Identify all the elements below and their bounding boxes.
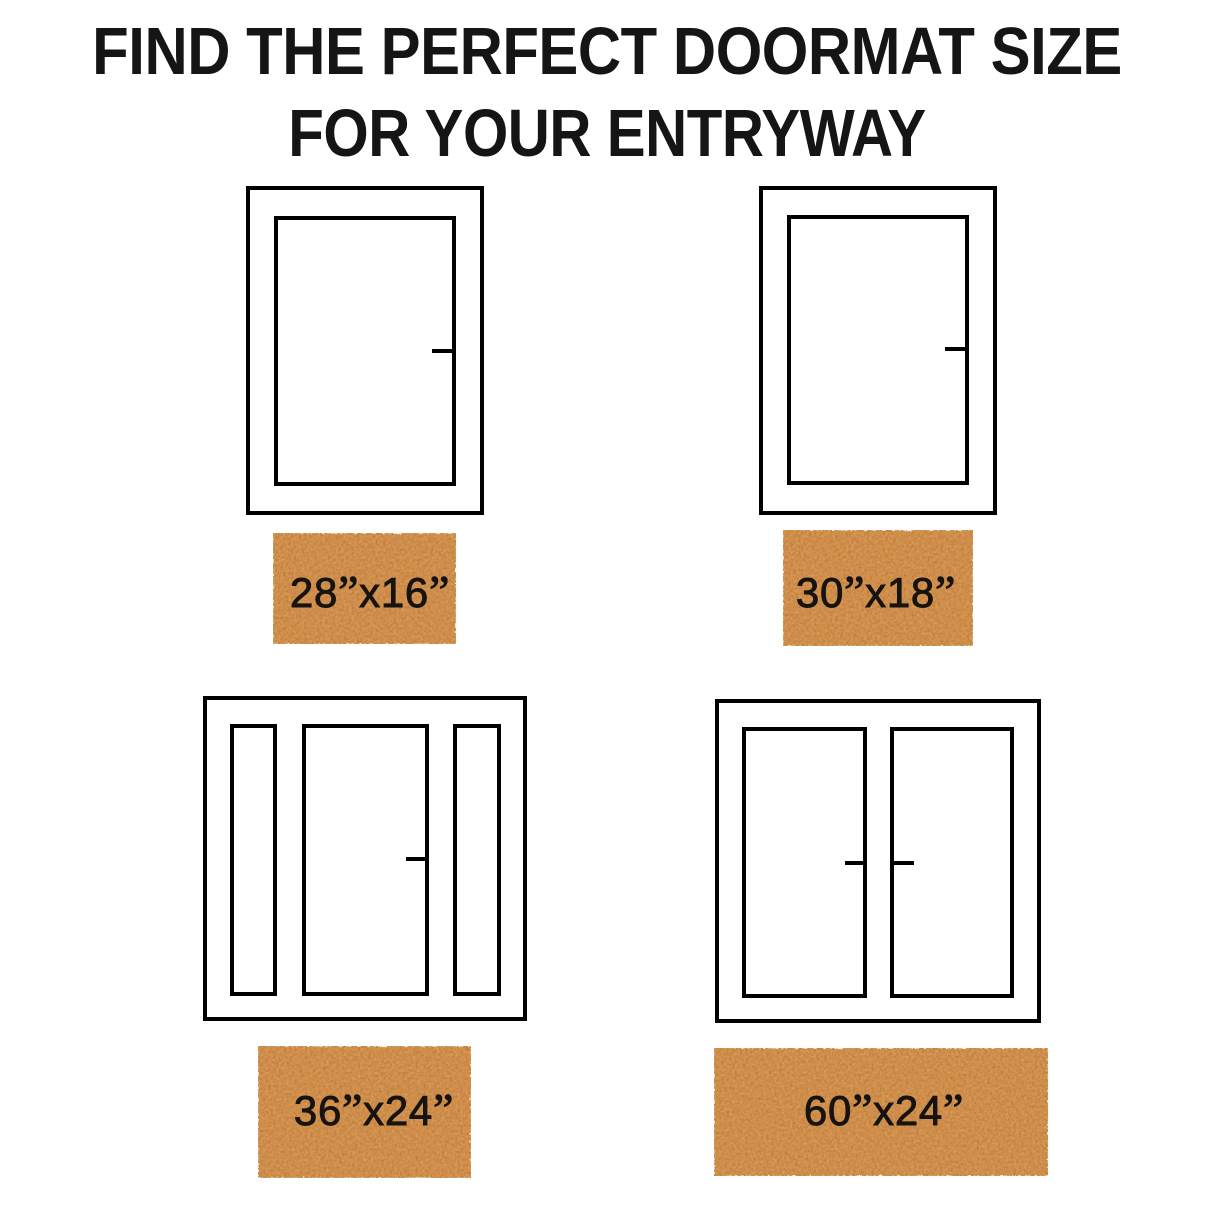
svg-text:30”x18”: 30”x18” xyxy=(796,566,956,617)
svg-text:28”x16”: 28”x16” xyxy=(290,566,450,617)
svg-text:60”x24”: 60”x24” xyxy=(804,1084,964,1135)
svg-text:36”x24”: 36”x24” xyxy=(294,1084,454,1135)
